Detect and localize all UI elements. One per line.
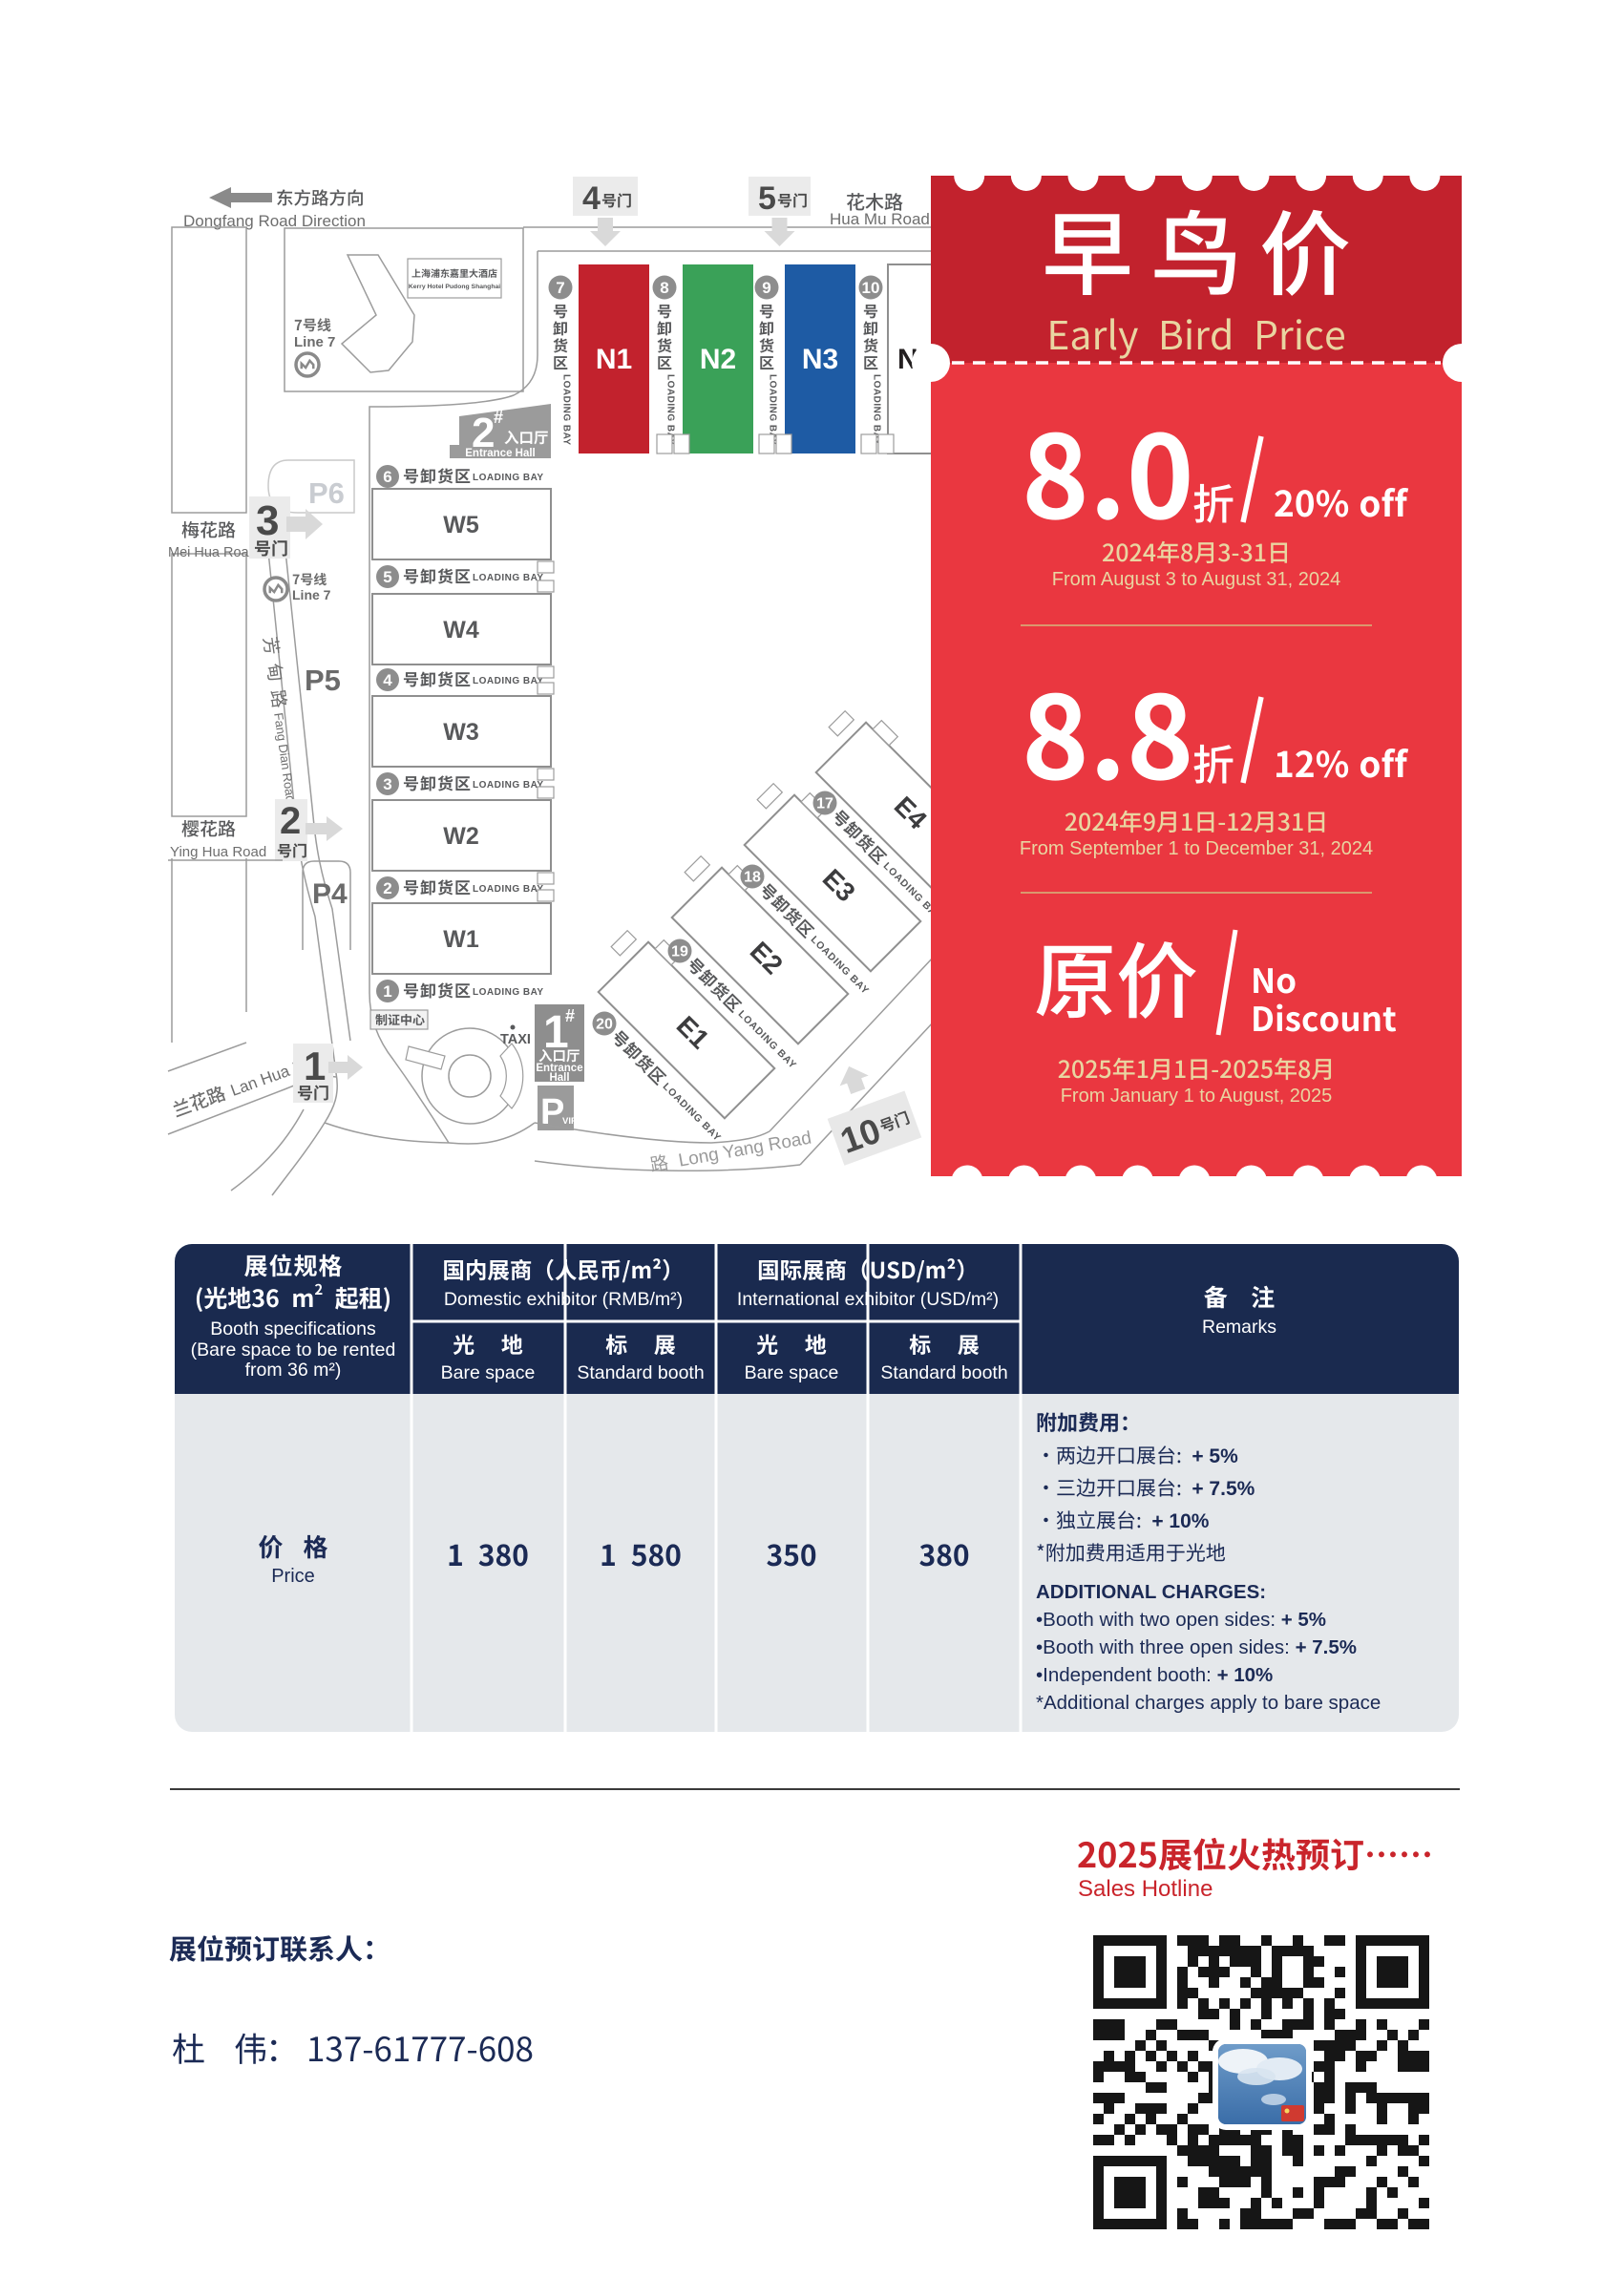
svg-text:20: 20 — [596, 1017, 613, 1033]
svg-text:W4: W4 — [443, 617, 479, 643]
svg-text:W3: W3 — [443, 719, 479, 746]
svg-text:LOADING BAY: LOADING BAY — [473, 780, 544, 791]
svg-text:Standard booth: Standard booth — [880, 1362, 1007, 1383]
svg-text:Booth specifications: Booth specifications — [210, 1318, 376, 1339]
svg-text:8: 8 — [660, 279, 668, 297]
svg-text:18: 18 — [744, 870, 761, 886]
svg-text:#: # — [565, 1006, 575, 1025]
svg-text:W5: W5 — [443, 512, 479, 538]
svg-text:Bare space: Bare space — [745, 1362, 839, 1383]
svg-text:P5: P5 — [305, 664, 341, 697]
svg-text:1: 1 — [304, 1044, 326, 1088]
svg-text:N3: N3 — [802, 344, 838, 375]
svg-text:International exhibitor (USD/m: International exhibitor (USD/m²) — [737, 1289, 999, 1310]
svg-text:LOADING BAY: LOADING BAY — [473, 884, 544, 895]
svg-text:+ 7.5%: + 7.5% — [1296, 1636, 1357, 1658]
svg-text:5: 5 — [383, 568, 391, 586]
svg-text:Sales Hotline: Sales Hotline — [1078, 1876, 1213, 1902]
svg-text:9: 9 — [762, 279, 770, 297]
svg-text:#: # — [494, 408, 503, 427]
svg-text:From January 1 to August, 2025: From January 1 to August, 2025 — [1061, 1086, 1333, 1107]
svg-text:from 36 m²): from 36 m²) — [245, 1360, 342, 1381]
svg-text:7: 7 — [556, 279, 564, 297]
svg-text:+ 5%: + 5% — [1192, 1445, 1238, 1467]
svg-text:LOADING BAY: LOADING BAY — [473, 573, 544, 583]
svg-text:•Independent booth:: •Independent booth: — [1036, 1664, 1212, 1686]
svg-text:+ 10%: + 10% — [1151, 1510, 1209, 1532]
svg-text:Hall: Hall — [549, 1072, 569, 1084]
svg-text:1: 1 — [383, 982, 391, 1001]
svg-text:N2: N2 — [700, 344, 736, 375]
svg-text:Remarks: Remarks — [1202, 1317, 1276, 1338]
svg-text:10: 10 — [862, 279, 880, 297]
svg-text:ADDITIONAL CHARGES:: ADDITIONAL CHARGES: — [1036, 1581, 1266, 1603]
svg-text:P4: P4 — [312, 878, 348, 910]
svg-text:17: 17 — [816, 796, 833, 812]
svg-text:From August 3 to August 31, 20: From August 3 to August 31, 2024 — [1052, 569, 1340, 590]
svg-text:(Bare space to be rented: (Bare space to be rented — [191, 1339, 396, 1360]
svg-text:N1: N1 — [596, 344, 632, 375]
svg-text:6: 6 — [383, 468, 391, 486]
svg-text:LOADING BAY: LOADING BAY — [473, 473, 544, 483]
svg-text:Domestic exhibitor (RMB/m²): Domestic exhibitor (RMB/m²) — [444, 1289, 683, 1310]
svg-text:LOADING BAY: LOADING BAY — [561, 374, 572, 446]
svg-text:Kerry Hotel Pudong Shanghai: Kerry Hotel Pudong Shanghai — [409, 284, 500, 290]
svg-text:VIP: VIP — [562, 1116, 578, 1127]
svg-text:2: 2 — [280, 800, 301, 842]
svg-text:3: 3 — [383, 775, 391, 793]
svg-text:•Booth with two open sides:: •Booth with two open sides: — [1036, 1609, 1276, 1631]
svg-text:+ 7.5%: + 7.5% — [1192, 1478, 1255, 1500]
svg-text:+ 5%: + 5% — [1281, 1609, 1326, 1631]
svg-text:5: 5 — [758, 180, 776, 217]
svg-text:Hua Mu Road: Hua Mu Road — [830, 210, 930, 228]
svg-text:P6: P6 — [308, 476, 345, 510]
svg-text:Price: Price — [271, 1566, 315, 1587]
svg-text:Bare space: Bare space — [441, 1362, 536, 1383]
svg-text:W2: W2 — [443, 823, 479, 850]
svg-text:19: 19 — [671, 944, 688, 960]
svg-text:LOADING BAY: LOADING BAY — [473, 987, 544, 998]
svg-text:•Booth with three open sides:: •Booth with three open sides: — [1036, 1636, 1290, 1658]
svg-text:2: 2 — [383, 879, 391, 897]
svg-text:4: 4 — [582, 180, 601, 217]
svg-text:Standard booth: Standard booth — [577, 1362, 704, 1383]
svg-text:Line 7: Line 7 — [292, 587, 331, 602]
svg-text:Entrance Hall: Entrance Hall — [465, 448, 536, 459]
svg-text:TAXI: TAXI — [500, 1032, 531, 1047]
svg-text:*Additional charges apply to b: *Additional charges apply to bare space — [1036, 1692, 1381, 1714]
svg-text:W1: W1 — [443, 926, 479, 953]
svg-text:Line 7: Line 7 — [294, 334, 335, 350]
svg-text:+ 10%: + 10% — [1217, 1664, 1274, 1686]
svg-text:Ying Hua Road: Ying Hua Road — [170, 844, 266, 860]
svg-text:3: 3 — [256, 497, 279, 544]
svg-text:LOADING BAY: LOADING BAY — [473, 676, 544, 686]
svg-text:4: 4 — [383, 671, 392, 689]
svg-text:Mei Hua Road: Mei Hua Road — [168, 545, 257, 560]
svg-text:From September 1 to December 3: From September 1 to December 31, 2024 — [1020, 838, 1373, 859]
